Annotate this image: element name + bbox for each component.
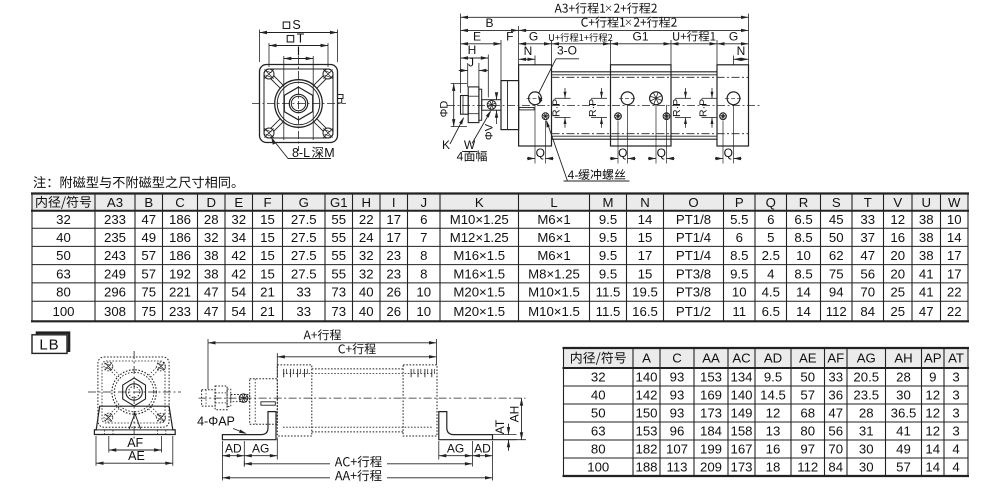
svg-text:C: C: [672, 351, 682, 366]
svg-text:14: 14: [925, 442, 940, 457]
svg-text:140: 140: [635, 370, 657, 385]
svg-text:169: 169: [700, 388, 722, 403]
svg-text:32: 32: [204, 230, 219, 245]
svg-text:9.5: 9.5: [764, 370, 782, 385]
svg-text:50: 50: [591, 406, 606, 421]
svg-text:PT1/4: PT1/4: [676, 230, 711, 245]
svg-text:28: 28: [896, 370, 911, 385]
svg-text:14: 14: [638, 212, 653, 227]
svg-text:112: 112: [826, 304, 847, 319]
svg-text:Q: Q: [536, 146, 545, 160]
svg-text:PT1/4: PT1/4: [676, 248, 711, 263]
svg-text:38: 38: [204, 248, 219, 263]
svg-text:17: 17: [386, 230, 401, 245]
svg-text:28: 28: [859, 406, 874, 421]
svg-text:26: 26: [386, 285, 401, 300]
svg-text:27.5: 27.5: [291, 248, 317, 263]
svg-text:N: N: [737, 44, 746, 58]
svg-text:K: K: [442, 138, 450, 152]
svg-text:AT: AT: [948, 351, 964, 366]
svg-text:3: 3: [952, 370, 959, 385]
svg-text:16: 16: [890, 230, 905, 245]
svg-text:40: 40: [359, 304, 374, 319]
svg-text:R·P: R·P: [698, 99, 710, 117]
svg-text:W: W: [948, 195, 961, 210]
svg-text:27.5: 27.5: [291, 266, 317, 281]
svg-text:31: 31: [859, 424, 874, 439]
svg-text:134: 134: [730, 370, 752, 385]
svg-text:186: 186: [169, 212, 191, 227]
svg-text:I: I: [297, 45, 300, 59]
svg-text:N: N: [524, 44, 533, 58]
svg-text:AD: AD: [474, 442, 491, 456]
svg-text:R·P: R·P: [671, 99, 683, 117]
svg-text:H: H: [361, 195, 371, 210]
svg-text:107: 107: [666, 442, 688, 457]
svg-text:10: 10: [416, 304, 431, 319]
svg-text:50: 50: [800, 370, 815, 385]
svg-text:32: 32: [591, 370, 606, 385]
svg-text:55: 55: [331, 248, 346, 263]
svg-text:16.5: 16.5: [632, 304, 658, 319]
svg-text:34: 34: [231, 230, 246, 245]
svg-text:209: 209: [700, 460, 722, 475]
svg-text:158: 158: [730, 424, 752, 439]
svg-text:18: 18: [766, 460, 781, 475]
svg-text:96: 96: [670, 424, 685, 439]
svg-text:4-: 4-: [568, 168, 579, 182]
svg-text:47: 47: [860, 248, 875, 263]
svg-text:27.5: 27.5: [291, 212, 317, 227]
svg-text:15: 15: [260, 266, 275, 281]
svg-text:LB: LB: [39, 337, 59, 354]
svg-text:M20×1.5: M20×1.5: [453, 304, 505, 319]
svg-text:8: 8: [420, 266, 427, 281]
svg-text:93: 93: [670, 388, 685, 403]
svg-text:M16×1.5: M16×1.5: [453, 266, 505, 281]
svg-text:B: B: [485, 16, 493, 30]
svg-text:6.5: 6.5: [762, 304, 780, 319]
svg-text:93: 93: [670, 406, 685, 421]
svg-text:47: 47: [828, 406, 843, 421]
svg-text:Q: Q: [766, 195, 776, 210]
svg-text:14: 14: [796, 285, 811, 300]
svg-text:23.5: 23.5: [853, 388, 879, 403]
svg-text:54: 54: [231, 285, 246, 300]
svg-text:12: 12: [890, 212, 905, 227]
svg-text:22: 22: [947, 304, 962, 319]
svg-text:68: 68: [800, 406, 815, 421]
svg-text:17: 17: [947, 248, 962, 263]
svg-text:63: 63: [56, 266, 71, 281]
svg-text:S: S: [832, 195, 841, 210]
svg-text:PT1/8: PT1/8: [676, 212, 711, 227]
svg-text:41: 41: [919, 266, 934, 281]
svg-text:4.5: 4.5: [762, 285, 780, 300]
svg-text:140: 140: [730, 388, 752, 403]
svg-text:E: E: [473, 30, 481, 44]
svg-text:54: 54: [231, 304, 246, 319]
svg-text:5: 5: [767, 230, 774, 245]
svg-text:Q: Q: [724, 146, 733, 160]
svg-text:57: 57: [896, 460, 911, 475]
svg-text:56: 56: [828, 424, 843, 439]
svg-text:75: 75: [141, 285, 156, 300]
svg-text:41: 41: [896, 424, 911, 439]
svg-text:M10×1.5: M10×1.5: [528, 304, 580, 319]
svg-text:M: M: [603, 195, 614, 210]
svg-text:45: 45: [829, 212, 844, 227]
svg-text:23: 23: [386, 248, 401, 263]
svg-text:24: 24: [359, 230, 374, 245]
svg-text:L: L: [550, 195, 557, 210]
svg-text:199: 199: [700, 442, 722, 457]
svg-text:22: 22: [947, 285, 962, 300]
svg-text:4: 4: [457, 150, 464, 164]
svg-text:AC: AC: [732, 351, 751, 366]
svg-text:55: 55: [331, 266, 346, 281]
svg-text:17: 17: [638, 248, 653, 263]
svg-text:M10×1.5: M10×1.5: [528, 285, 580, 300]
svg-text:50: 50: [56, 248, 71, 263]
svg-text:75: 75: [141, 304, 156, 319]
svg-text:93: 93: [670, 370, 685, 385]
svg-text:R·P: R·P: [551, 99, 563, 117]
svg-text:15: 15: [260, 230, 275, 245]
svg-text:M20×1.5: M20×1.5: [453, 285, 505, 300]
svg-text:50: 50: [829, 230, 844, 245]
svg-text:19.5: 19.5: [632, 285, 658, 300]
svg-text:3: 3: [952, 424, 959, 439]
svg-text:21: 21: [260, 304, 275, 319]
svg-text:AE: AE: [128, 449, 145, 463]
svg-text:17: 17: [386, 212, 401, 227]
svg-text:M16×1.5: M16×1.5: [453, 248, 505, 263]
svg-text:25: 25: [890, 285, 905, 300]
svg-text:11.5: 11.5: [596, 285, 621, 300]
svg-text:33: 33: [296, 304, 311, 319]
svg-text:296: 296: [104, 285, 126, 300]
svg-text:V: V: [893, 195, 902, 210]
svg-text:P: P: [735, 195, 744, 210]
svg-text:AD: AD: [225, 442, 242, 456]
svg-text:56: 56: [860, 266, 875, 281]
svg-text:AF: AF: [827, 351, 844, 366]
svg-text:182: 182: [635, 442, 657, 457]
svg-text:63: 63: [591, 424, 606, 439]
svg-text:7: 7: [420, 230, 427, 245]
svg-text:15: 15: [638, 230, 653, 245]
svg-text:186: 186: [169, 248, 191, 263]
svg-text:20.5: 20.5: [853, 370, 879, 385]
svg-text:U: U: [921, 195, 931, 210]
svg-text:11.5: 11.5: [596, 304, 621, 319]
svg-text:12: 12: [766, 406, 781, 421]
svg-text:6.5: 6.5: [794, 212, 812, 227]
svg-text:40: 40: [56, 230, 71, 245]
svg-text:100: 100: [52, 304, 74, 319]
svg-text:S: S: [292, 18, 300, 32]
svg-text:15: 15: [260, 248, 275, 263]
svg-text:167: 167: [730, 442, 752, 457]
svg-text:AA: AA: [702, 351, 720, 366]
svg-text:75: 75: [829, 266, 844, 281]
svg-text:41: 41: [919, 285, 934, 300]
svg-text:G1: G1: [632, 30, 648, 44]
svg-text:8.5: 8.5: [794, 230, 812, 245]
svg-text:B: B: [144, 195, 153, 210]
svg-text:2.5: 2.5: [762, 248, 780, 263]
svg-text:97: 97: [800, 442, 815, 457]
svg-text:12: 12: [925, 406, 940, 421]
svg-text:M6×1: M6×1: [537, 230, 570, 245]
svg-text:14: 14: [947, 230, 962, 245]
svg-text:249: 249: [104, 266, 126, 281]
svg-text:14: 14: [925, 460, 940, 475]
svg-text:R·P: R·P: [587, 99, 599, 117]
svg-text:G: G: [529, 30, 538, 44]
svg-text:25: 25: [890, 304, 905, 319]
svg-text:10: 10: [732, 285, 747, 300]
svg-text:173: 173: [730, 460, 752, 475]
svg-text:AP: AP: [924, 351, 942, 366]
svg-text:42: 42: [231, 248, 246, 263]
svg-text:3-O: 3-O: [557, 44, 577, 58]
svg-text:16: 16: [766, 442, 781, 457]
svg-text:17: 17: [947, 266, 962, 281]
svg-text:94: 94: [829, 285, 844, 300]
svg-text:235: 235: [104, 230, 126, 245]
svg-text:5.5: 5.5: [730, 212, 748, 227]
svg-text:150: 150: [635, 406, 657, 421]
svg-text:47: 47: [204, 285, 219, 300]
svg-text:8.5: 8.5: [730, 248, 748, 263]
svg-text:PT1/2: PT1/2: [676, 304, 711, 319]
svg-text:13: 13: [766, 424, 781, 439]
svg-text:4: 4: [767, 266, 774, 281]
svg-text:184: 184: [700, 424, 722, 439]
svg-text:O: O: [688, 195, 698, 210]
svg-text:153: 153: [635, 424, 657, 439]
svg-text:I: I: [392, 195, 396, 210]
svg-text:M6×1: M6×1: [537, 212, 570, 227]
svg-text:38: 38: [919, 248, 934, 263]
svg-text:113: 113: [666, 460, 687, 475]
svg-text:27.5: 27.5: [291, 230, 317, 245]
svg-text:38: 38: [204, 266, 219, 281]
svg-text:20: 20: [890, 266, 905, 281]
svg-text:55: 55: [331, 230, 346, 245]
svg-text:D: D: [206, 195, 216, 210]
svg-text:100: 100: [587, 460, 609, 475]
svg-text:221: 221: [169, 285, 191, 300]
svg-text:84: 84: [828, 460, 843, 475]
svg-text:A: A: [642, 351, 651, 366]
svg-text:3: 3: [952, 406, 959, 421]
svg-text:ΦV: ΦV: [484, 123, 496, 140]
svg-text:PT3/8: PT3/8: [676, 285, 711, 300]
svg-text:47: 47: [204, 304, 219, 319]
svg-text:73: 73: [331, 285, 346, 300]
svg-text:22: 22: [359, 212, 374, 227]
svg-text:80: 80: [56, 285, 71, 300]
svg-text:30: 30: [859, 460, 874, 475]
svg-text:149: 149: [730, 406, 752, 421]
svg-text:49: 49: [896, 442, 911, 457]
svg-text:10: 10: [416, 285, 431, 300]
svg-text:40: 40: [359, 285, 374, 300]
svg-text:6: 6: [767, 212, 774, 227]
svg-text:9: 9: [929, 370, 936, 385]
svg-text:AE: AE: [799, 351, 817, 366]
svg-text:186: 186: [169, 230, 191, 245]
svg-text:15: 15: [260, 212, 275, 227]
svg-text:M8×1.25: M8×1.25: [528, 266, 580, 281]
svg-text:G1: G1: [330, 195, 348, 210]
svg-text:11: 11: [732, 304, 746, 319]
svg-text:9.5: 9.5: [599, 266, 617, 281]
svg-text:57: 57: [141, 248, 156, 263]
svg-text:ΦD: ΦD: [439, 101, 451, 118]
svg-text:A3: A3: [107, 195, 123, 210]
svg-text:32: 32: [359, 248, 374, 263]
svg-text:10: 10: [796, 248, 811, 263]
svg-text:14.5: 14.5: [760, 388, 786, 403]
svg-text:28: 28: [204, 212, 219, 227]
svg-text:33: 33: [860, 212, 875, 227]
svg-text:33: 33: [828, 370, 843, 385]
svg-text:30: 30: [859, 442, 874, 457]
svg-text:20: 20: [890, 248, 905, 263]
svg-text:40: 40: [591, 388, 606, 403]
svg-text:243: 243: [104, 248, 126, 263]
svg-text:4: 4: [952, 460, 959, 475]
svg-text:AG: AG: [857, 351, 876, 366]
svg-text:32: 32: [359, 266, 374, 281]
svg-text:112: 112: [797, 460, 818, 475]
svg-text:AG: AG: [447, 442, 464, 456]
svg-text:49: 49: [141, 230, 156, 245]
svg-text:15: 15: [638, 266, 653, 281]
svg-text:38: 38: [919, 212, 934, 227]
svg-text:R: R: [799, 195, 809, 210]
svg-text:G: G: [299, 195, 309, 210]
svg-text:AG: AG: [252, 442, 269, 456]
svg-text:37: 37: [860, 230, 875, 245]
svg-text:192: 192: [169, 266, 191, 281]
svg-text:G: G: [729, 30, 738, 44]
svg-text:42: 42: [231, 266, 246, 281]
svg-text:3: 3: [952, 388, 959, 403]
svg-text:32: 32: [56, 212, 71, 227]
svg-text:J: J: [468, 55, 474, 69]
svg-text:142: 142: [635, 388, 657, 403]
svg-text:14: 14: [796, 304, 811, 319]
svg-text:9.5: 9.5: [730, 266, 748, 281]
svg-text:84: 84: [860, 304, 875, 319]
svg-text:F: F: [263, 195, 271, 210]
svg-text:PT3/8: PT3/8: [676, 266, 711, 281]
svg-text:57: 57: [800, 388, 815, 403]
svg-text:9.5: 9.5: [599, 212, 617, 227]
svg-text:47: 47: [141, 212, 156, 227]
svg-text:M12×1.25: M12×1.25: [450, 230, 509, 245]
svg-text:36.5: 36.5: [891, 406, 917, 421]
svg-text:70: 70: [860, 285, 875, 300]
svg-text:80: 80: [591, 442, 606, 457]
svg-text:33: 33: [296, 285, 311, 300]
svg-text:4-ΦAP: 4-ΦAP: [197, 414, 235, 428]
svg-text:308: 308: [104, 304, 126, 319]
svg-text:36: 36: [828, 388, 843, 403]
svg-text:10: 10: [947, 212, 962, 227]
svg-text:32: 32: [231, 212, 246, 227]
svg-text:8-L: 8-L: [292, 146, 310, 160]
svg-text:70: 70: [828, 442, 843, 457]
svg-text:Q: Q: [657, 146, 666, 160]
svg-text:9.5: 9.5: [599, 230, 617, 245]
svg-text:AH: AH: [894, 351, 912, 366]
svg-text:8.5: 8.5: [794, 266, 812, 281]
svg-text:C: C: [175, 195, 185, 210]
svg-text:N: N: [640, 195, 650, 210]
svg-text:21: 21: [260, 285, 275, 300]
svg-text:M10×1.25: M10×1.25: [450, 212, 509, 227]
svg-text:E: E: [234, 195, 243, 210]
svg-text:Q: Q: [618, 146, 627, 160]
svg-text:T: T: [864, 195, 872, 210]
svg-text:M6×1: M6×1: [537, 248, 570, 263]
svg-text:6: 6: [736, 230, 743, 245]
svg-text:F: F: [506, 30, 513, 44]
svg-text:M: M: [324, 146, 334, 160]
svg-text:AF: AF: [127, 436, 143, 450]
svg-text:AH: AH: [508, 406, 522, 423]
svg-text:173: 173: [700, 406, 722, 421]
svg-text:12: 12: [925, 388, 940, 403]
svg-text:47: 47: [919, 304, 934, 319]
svg-text:T: T: [297, 32, 305, 46]
svg-text:J: J: [420, 195, 427, 210]
svg-text:9.5: 9.5: [599, 248, 617, 263]
svg-text:188: 188: [635, 460, 657, 475]
svg-text:153: 153: [700, 370, 722, 385]
svg-text:4: 4: [952, 442, 959, 457]
svg-text:233: 233: [104, 212, 126, 227]
svg-text:6: 6: [420, 212, 427, 227]
svg-text:K: K: [475, 195, 484, 210]
svg-text:30: 30: [896, 388, 911, 403]
svg-text:62: 62: [829, 248, 844, 263]
svg-text:23: 23: [386, 266, 401, 281]
svg-text:55: 55: [331, 212, 346, 227]
svg-text:80: 80: [800, 424, 815, 439]
svg-text:26: 26: [386, 304, 401, 319]
svg-text:AT: AT: [493, 419, 507, 434]
svg-text:8: 8: [420, 248, 427, 263]
svg-text:233: 233: [169, 304, 191, 319]
svg-text:AD: AD: [764, 351, 782, 366]
svg-text:38: 38: [919, 230, 934, 245]
svg-text:12: 12: [925, 424, 940, 439]
svg-text:73: 73: [331, 304, 346, 319]
svg-text:57: 57: [141, 266, 156, 281]
